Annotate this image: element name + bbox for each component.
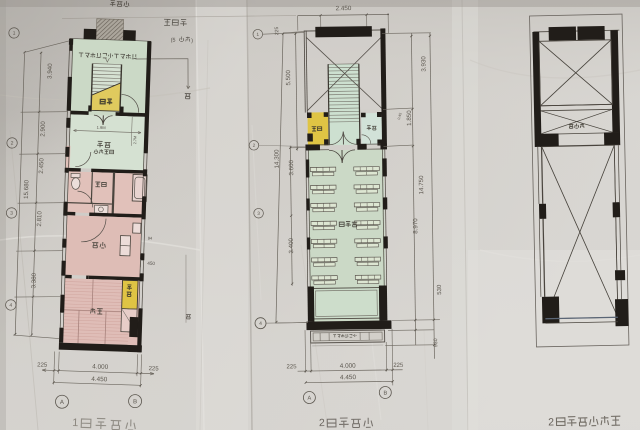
svg-text:): ): [191, 38, 193, 44]
svg-text:530: 530: [437, 284, 443, 295]
svg-text:2: 2: [319, 417, 325, 429]
svg-text:3.930: 3.930: [420, 56, 427, 72]
svg-text:4.450: 4.450: [340, 374, 357, 381]
svg-text:3.400: 3.400: [288, 237, 295, 253]
svg-text:225: 225: [37, 362, 48, 368]
svg-text:A: A: [307, 396, 311, 402]
svg-text:225: 225: [393, 363, 404, 369]
svg-text:1.850: 1.850: [406, 110, 413, 126]
svg-text:4.000: 4.000: [92, 363, 109, 371]
svg-text:15.680: 15.680: [23, 179, 31, 199]
svg-text:2.450: 2.450: [38, 158, 46, 174]
svg-text:14.300: 14.300: [273, 149, 280, 169]
svg-text:3.380: 3.380: [30, 272, 38, 288]
svg-text:225: 225: [149, 366, 160, 372]
svg-text:(5: (5: [171, 38, 176, 44]
svg-text:2: 2: [548, 416, 554, 428]
svg-text:4.000: 4.000: [340, 363, 357, 370]
svg-text:4: 4: [259, 321, 262, 327]
svg-text:225: 225: [286, 364, 297, 370]
svg-text:1.9M: 1.9M: [97, 125, 106, 130]
svg-text:2: 2: [11, 141, 14, 147]
svg-text:5.500: 5.500: [285, 69, 292, 85]
svg-text:B: B: [383, 391, 387, 397]
svg-text:3: 3: [10, 211, 13, 217]
svg-text:2.810: 2.810: [36, 210, 44, 226]
svg-text:A: A: [60, 400, 64, 406]
svg-text:3.600: 3.600: [288, 159, 295, 175]
svg-text:4: 4: [9, 303, 12, 309]
svg-text:2.900: 2.900: [39, 121, 47, 137]
svg-text:1: 1: [72, 417, 79, 429]
svg-text:14.750: 14.750: [418, 175, 425, 195]
svg-text:B: B: [133, 399, 137, 405]
svg-text:2.450: 2.450: [336, 5, 352, 12]
svg-text:2.7M: 2.7M: [133, 136, 137, 145]
svg-text:450: 450: [147, 261, 155, 266]
svg-text:930: 930: [433, 338, 439, 347]
svg-text:4.450: 4.450: [91, 376, 108, 384]
svg-text:3.940: 3.940: [46, 63, 54, 79]
svg-text:1: 1: [13, 31, 16, 37]
svg-text:8.970: 8.970: [412, 218, 419, 234]
